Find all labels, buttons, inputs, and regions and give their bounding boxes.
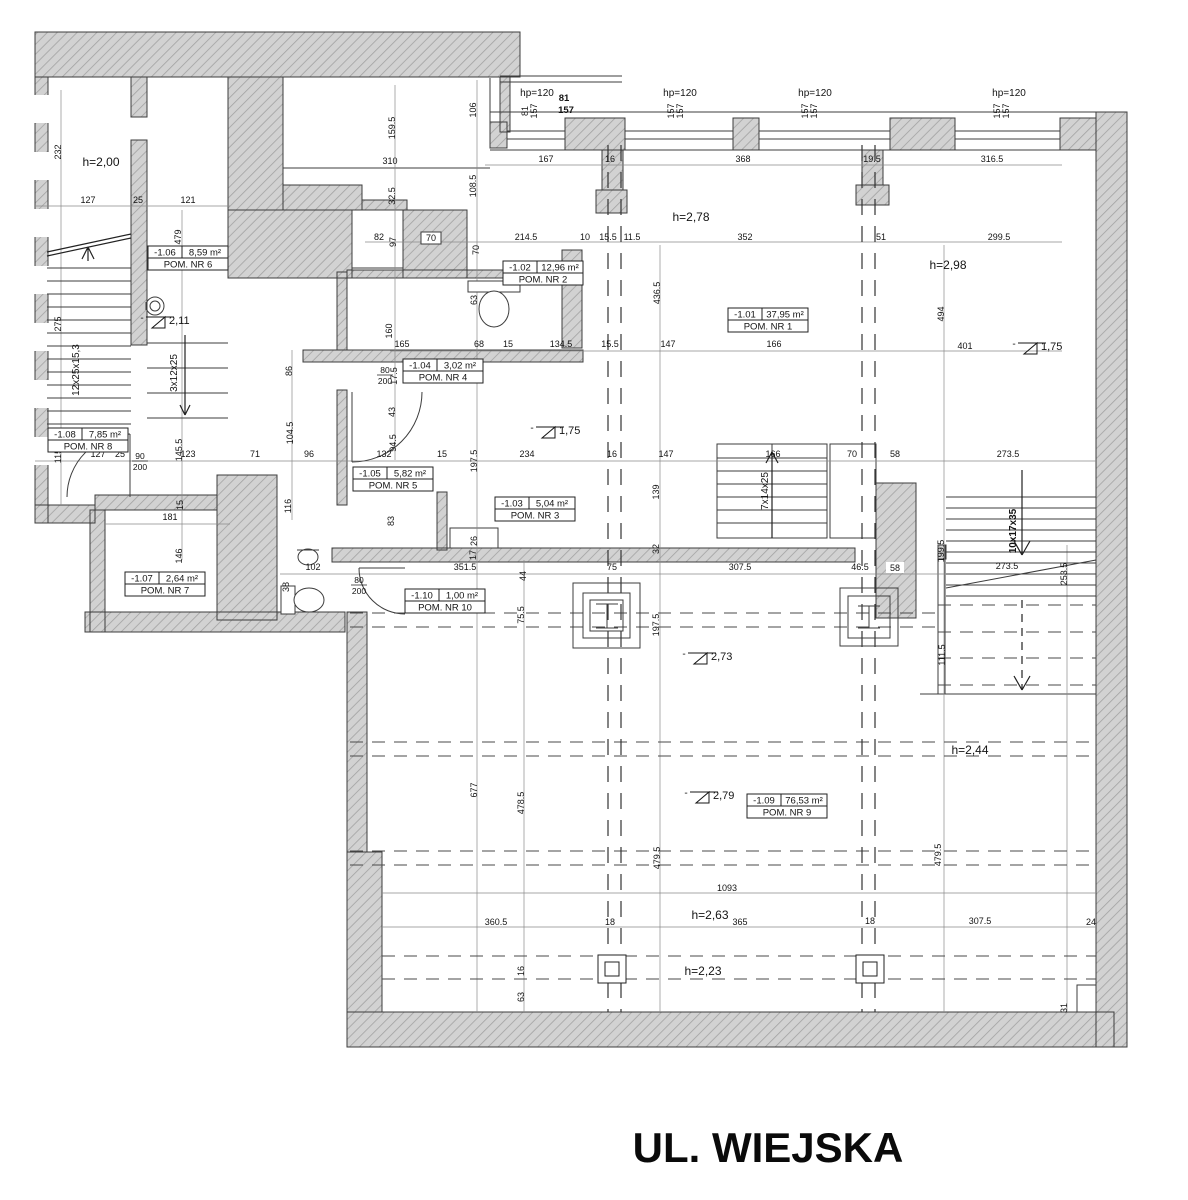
dim-label: 111.5: [937, 644, 947, 665]
dim-label: 68: [474, 339, 484, 349]
dim-label: 15: [503, 339, 513, 349]
dim-label: 360.5: [485, 917, 508, 927]
dim-label: 160: [384, 323, 394, 338]
room-number: -1.03: [501, 499, 523, 510]
dim-label: 352: [737, 232, 752, 242]
dim-label: 102: [305, 562, 320, 572]
dim-label: 94.5: [388, 434, 398, 452]
dim-label: 253.5: [1059, 563, 1069, 586]
dim-label: 46.5: [851, 562, 869, 572]
dim-label: 157: [809, 103, 819, 118]
level-minus: -: [530, 423, 533, 434]
dim-label: 199.5: [936, 540, 946, 563]
room-number: -1.02: [509, 263, 531, 274]
room-name: POM. NR 1: [744, 322, 793, 333]
room-area: 3,02 m²: [444, 361, 476, 372]
dim-label: 127: [80, 195, 95, 205]
room-name: POM. NR 6: [164, 260, 213, 271]
dim-label: 32.5: [387, 187, 397, 205]
room-number: -1.05: [359, 469, 381, 480]
ceiling-height-label: h=2,00: [82, 155, 119, 169]
dim-label: 63: [469, 295, 479, 305]
dim-label: 70: [847, 449, 857, 459]
dim-label: 104.5: [285, 422, 295, 445]
room-area: 5,04 m²: [536, 499, 568, 510]
stair-count-label: 12x25x15,3: [71, 344, 82, 396]
dim-label: 166: [765, 449, 780, 459]
dim-label: 106: [468, 102, 478, 117]
dim-label: 1093: [717, 883, 737, 893]
floor-drain: [146, 297, 164, 315]
dim-label: 165: [394, 339, 409, 349]
grid-axes-dashed: [608, 145, 875, 1012]
dim-label: 17: [468, 550, 478, 560]
room-name: POM. NR 7: [141, 586, 190, 597]
dim-label: 75.5: [516, 606, 526, 624]
dim-label: 234: [519, 449, 534, 459]
level-value: 1,75: [559, 425, 580, 437]
dim-label: 307.5: [729, 562, 752, 572]
dim-label: 15: [437, 449, 447, 459]
dim-label: 134.5: [550, 339, 573, 349]
dim-label: 116: [283, 499, 293, 513]
dim-label: 26: [469, 536, 479, 546]
dim-label: 58: [890, 449, 900, 459]
dim-label: 108.5: [468, 175, 478, 198]
room-number: -1.07: [131, 574, 153, 585]
room-name: POM. NR 2: [519, 275, 568, 286]
room-area: 7,85 m²: [89, 430, 121, 441]
column-detail-left: [573, 583, 640, 648]
window-head-label: hp=120: [663, 88, 697, 99]
dim-label: 159.5: [387, 117, 397, 140]
room-name: POM. NR 4: [419, 373, 468, 384]
dim-label: 401: [957, 341, 972, 351]
floor-plan-drawing: 127251213101671636819.5316.5214.51015.51…: [0, 0, 1188, 1200]
dim-label: 70: [471, 245, 481, 255]
floor-plan-page: 127251213101671636819.5316.5214.51015.51…: [0, 0, 1188, 1200]
dim-label: 479: [173, 229, 183, 244]
dim-label: 478.5: [516, 792, 526, 815]
dim-label: 436.5: [652, 282, 662, 305]
dim-label: 157: [529, 103, 539, 118]
dim-label: 147: [660, 339, 675, 349]
dim-label: 25: [133, 195, 143, 205]
stair-count-label: 7x14x25: [760, 472, 771, 510]
room-number: -1.10: [411, 591, 433, 602]
window-head-label: hp=120: [798, 88, 832, 99]
dim-label: 197.5: [651, 614, 661, 637]
dim-label: 166: [766, 339, 781, 349]
dim-label: 31: [1059, 1003, 1069, 1013]
door-width: 80: [354, 575, 364, 585]
dim-label: 71: [250, 449, 260, 459]
dim-label: 16: [607, 449, 617, 459]
room-area: 37,95 m²: [766, 310, 804, 321]
level-value: 2,73: [711, 651, 732, 663]
door-height: 200: [133, 462, 147, 472]
window-size-bold: 81: [559, 93, 570, 104]
dim-label: 157: [675, 103, 685, 118]
dim-label: 38: [281, 582, 291, 592]
dim-label: 365: [732, 917, 747, 927]
dim-label: 157: [1001, 103, 1011, 118]
dim-label: 351.5: [454, 562, 477, 572]
dim-label: 214.5: [515, 232, 538, 242]
dim-label: 15.5: [601, 339, 619, 349]
dim-label: 58: [890, 563, 900, 573]
room-name: POM. NR 9: [763, 808, 812, 819]
room-number: -1.01: [734, 310, 756, 321]
dim-label: 97: [388, 237, 398, 247]
dim-label: 24: [1086, 917, 1096, 927]
door-height: 200: [378, 376, 392, 386]
dim-label: 86: [284, 366, 294, 376]
dim-label: 197.5: [469, 450, 479, 473]
room-area: 8,59 m²: [189, 248, 221, 259]
dim-label: 96: [304, 449, 314, 459]
dim-label: 479.5: [933, 844, 943, 867]
dim-label: 275: [53, 316, 63, 331]
dim-label: 145.5: [174, 439, 184, 462]
dim-label: 316.5: [981, 154, 1004, 164]
room-area: 76,53 m²: [785, 796, 823, 807]
walls-hatched: [35, 32, 1127, 1047]
dim-label: 18: [865, 916, 875, 926]
dim-label: 494: [936, 306, 946, 321]
dim-label: 11.5: [624, 232, 641, 242]
dim-label: 121: [180, 195, 195, 205]
room-name: POM. NR 3: [511, 511, 560, 522]
dim-label: 43: [387, 407, 397, 417]
column-bottom-right: [856, 955, 884, 983]
room-name: POM. NR 8: [64, 442, 113, 453]
ceiling-height-label: h=2,44: [951, 743, 988, 757]
dim-label: 299.5: [988, 232, 1011, 242]
ceiling-height-label: h=2,78: [672, 210, 709, 224]
dim-label: 15: [175, 500, 185, 510]
dim-label: 146: [174, 548, 184, 563]
ceiling-height-label: h=2,98: [929, 258, 966, 272]
dim-label: 147: [658, 449, 673, 459]
level-value: 2,11: [169, 315, 190, 327]
dim-label: 677: [469, 782, 479, 797]
dim-label: 181: [162, 512, 177, 522]
wall-niche: [1077, 985, 1096, 1012]
dim-label: 15.5: [599, 232, 617, 242]
dim-label: 75: [607, 562, 617, 572]
dim-label: 63: [516, 992, 526, 1002]
dim-label: 70: [426, 233, 436, 243]
dim-label: 16: [516, 966, 526, 976]
dim-label: 310: [382, 156, 397, 166]
room-number: -1.09: [753, 796, 775, 807]
street-name-label: UL. WIEJSKA: [633, 1124, 904, 1171]
level-minus: -: [682, 649, 685, 660]
dim-label: 139: [651, 484, 661, 499]
dim-label: 19.5: [863, 154, 881, 164]
level-value: 1,75: [1041, 341, 1062, 353]
room-area: 12,96 m²: [541, 263, 579, 274]
room-name: POM. NR 5: [369, 481, 418, 492]
level-minus: -: [140, 313, 143, 324]
dim-label: 44: [518, 571, 528, 581]
dim-label: 18: [605, 917, 615, 927]
room-area: 5,82 m²: [394, 469, 426, 480]
dim-label: 51: [876, 232, 886, 242]
dim-label: 479.5: [652, 847, 662, 870]
column-bottom-left: [598, 955, 626, 983]
ceiling-height-label: h=2,63: [691, 908, 728, 922]
dim-label: 83: [386, 516, 396, 526]
level-minus: -: [1012, 339, 1015, 350]
stair-count-label: 3x12x25: [169, 354, 180, 392]
dim-label: 10: [580, 232, 590, 242]
room-name: POM. NR 10: [418, 603, 472, 614]
room-number: -1.06: [154, 248, 176, 259]
room-number: -1.08: [54, 430, 76, 441]
door-width: 80: [380, 365, 390, 375]
room-area: 2,64 m²: [166, 574, 198, 585]
dim-label: 307.5: [969, 916, 992, 926]
window-head-label: hp=120: [992, 88, 1026, 99]
dim-label: 82: [374, 232, 384, 242]
dim-label: 368: [735, 154, 750, 164]
level-value: 2,79: [713, 790, 734, 802]
dim-label: 273.5: [996, 561, 1019, 571]
window-head-label: hp=120: [520, 88, 554, 99]
dim-label: 32: [651, 544, 661, 554]
room-number: -1.04: [409, 361, 431, 372]
window-size-bold: 157: [558, 105, 574, 116]
dim-label: 273.5: [997, 449, 1020, 459]
stair-count-label: 10x17x35: [1008, 508, 1019, 553]
ceiling-height-label: h=2,23: [684, 964, 721, 978]
room-area: 1,00 m²: [446, 591, 478, 602]
door-width: 90: [135, 451, 145, 461]
door-height: 200: [352, 586, 366, 596]
dim-label: 16: [605, 154, 615, 164]
dim-label: 232: [53, 144, 63, 159]
level-minus: -: [684, 788, 687, 799]
dim-label: 167: [538, 154, 553, 164]
